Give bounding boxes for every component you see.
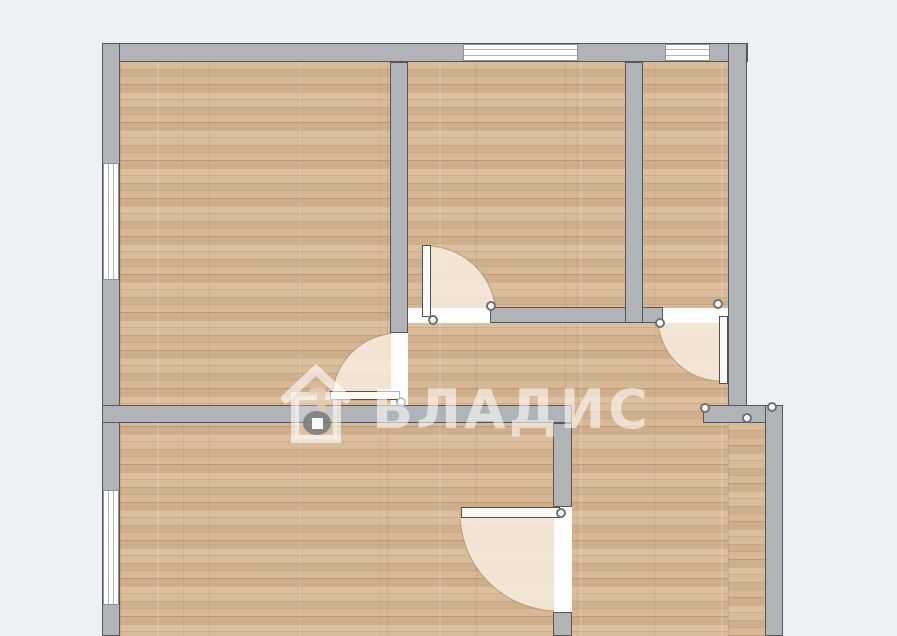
door-arc-topleft-room — [332, 333, 399, 400]
door-arc-topright-room — [658, 318, 721, 381]
door-leaf — [461, 507, 560, 518]
hinge-marker — [742, 413, 752, 423]
wall-topleft-room-right — [390, 62, 408, 333]
wall-right-upper — [728, 43, 747, 407]
door-opening — [408, 308, 490, 323]
hinge-marker — [556, 508, 566, 518]
wall-middle-horizontal — [102, 405, 572, 423]
window — [463, 44, 578, 61]
window — [665, 44, 710, 61]
door-leaf — [719, 316, 728, 384]
door-arc-bottom-rooms — [460, 513, 558, 611]
door-leaf — [330, 391, 400, 400]
hinge-marker — [428, 315, 438, 325]
floor-plan-canvas: 1 ВЛАДИС — [0, 0, 897, 636]
wall-midright-vertical — [625, 62, 643, 323]
hinge-marker — [700, 403, 710, 413]
wall-top — [102, 43, 748, 62]
hinge-marker — [767, 402, 777, 412]
hinge-marker — [486, 301, 496, 311]
door-leaf — [422, 245, 431, 317]
window — [103, 163, 119, 280]
wall-right-lower — [765, 405, 783, 636]
wall-bottomrooms-divider-lower — [553, 612, 572, 636]
door-opening — [554, 507, 572, 612]
hinge-marker — [396, 397, 406, 407]
hinge-marker — [713, 299, 723, 309]
wall-bottomrooms-divider-upper — [553, 423, 572, 507]
hinge-marker — [655, 318, 665, 328]
window — [103, 490, 119, 605]
